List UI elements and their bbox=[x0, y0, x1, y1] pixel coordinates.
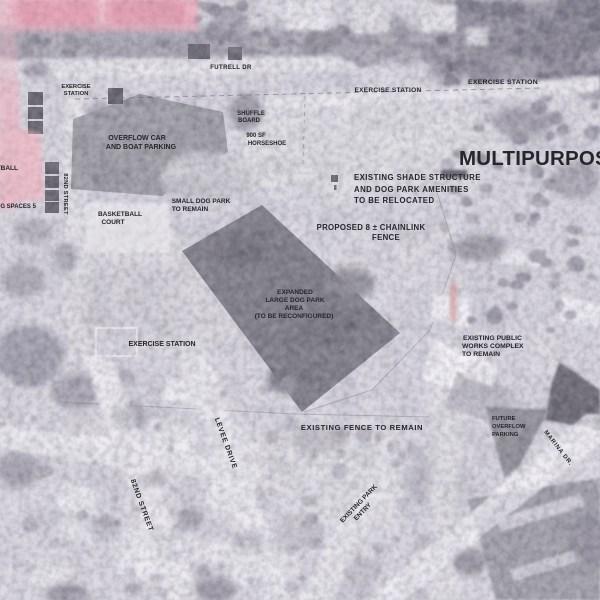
svg-text:(TO BE RECONFIGURED): (TO BE RECONFIGURED) bbox=[255, 313, 334, 320]
svg-text:TO BE RELOCATED: TO BE RELOCATED bbox=[354, 196, 435, 205]
svg-text:BOARD: BOARD bbox=[238, 118, 261, 124]
svg-text:WORKS COMPLEX: WORKS COMPLEX bbox=[462, 343, 524, 350]
svg-text:EXERCISE STATION: EXERCISE STATION bbox=[468, 79, 538, 86]
svg-text:82ND STREET: 82ND STREET bbox=[62, 173, 68, 215]
svg-text:EXERCISE: EXERCISE bbox=[61, 84, 90, 90]
svg-text:OVERFLOW: OVERFLOW bbox=[492, 424, 526, 430]
svg-text:EXERCISE STATION: EXERCISE STATION bbox=[354, 87, 421, 94]
svg-text:NG SPACES 5: NG SPACES 5 bbox=[0, 204, 37, 210]
svg-text:TBALL: TBALL bbox=[0, 165, 18, 172]
svg-text:PROPOSED 8 ± CHAINLINK: PROPOSED 8 ± CHAINLINK bbox=[317, 223, 426, 232]
svg-text:PARKING: PARKING bbox=[492, 432, 519, 438]
svg-text:MULTIPURPOS: MULTIPURPOS bbox=[459, 147, 600, 170]
svg-text:LARGE DOG PARK: LARGE DOG PARK bbox=[265, 297, 324, 304]
svg-text:AREA: AREA bbox=[285, 305, 304, 312]
svg-text:OVERFLOW CAR: OVERFLOW CAR bbox=[108, 135, 166, 142]
svg-text:EXISTING PUBLIC: EXISTING PUBLIC bbox=[463, 335, 522, 342]
svg-text:EXISTING SHADE STRUCTURE: EXISTING SHADE STRUCTURE bbox=[354, 173, 481, 182]
svg-text:HORSESHOE: HORSESHOE bbox=[248, 141, 286, 147]
svg-text:TO REMAIN: TO REMAIN bbox=[172, 206, 209, 213]
svg-text:SHUFFLE: SHUFFLE bbox=[237, 111, 265, 117]
svg-text:FUTRELL DR: FUTRELL DR bbox=[210, 65, 252, 71]
svg-text:BASKETBALL: BASKETBALL bbox=[98, 211, 142, 218]
svg-text:EXISTING FENCE TO REMAIN: EXISTING FENCE TO REMAIN bbox=[301, 423, 423, 432]
svg-text:FUTURE: FUTURE bbox=[492, 416, 516, 422]
svg-text:COURT: COURT bbox=[101, 219, 124, 226]
svg-text:EXPANDED: EXPANDED bbox=[277, 289, 313, 296]
svg-text:SMALL DOG PARK: SMALL DOG PARK bbox=[172, 198, 231, 205]
svg-text:TO REMAIN: TO REMAIN bbox=[462, 351, 500, 358]
svg-text:STATION: STATION bbox=[64, 91, 89, 97]
svg-text:FENCE: FENCE bbox=[372, 233, 400, 242]
svg-text:900 SF: 900 SF bbox=[246, 133, 266, 139]
svg-text:AND DOG PARK AMENITIES: AND DOG PARK AMENITIES bbox=[354, 185, 469, 194]
svg-text:AND BOAT PARKING: AND BOAT PARKING bbox=[106, 144, 177, 151]
svg-text:EXERCISE STATION: EXERCISE STATION bbox=[128, 341, 195, 348]
